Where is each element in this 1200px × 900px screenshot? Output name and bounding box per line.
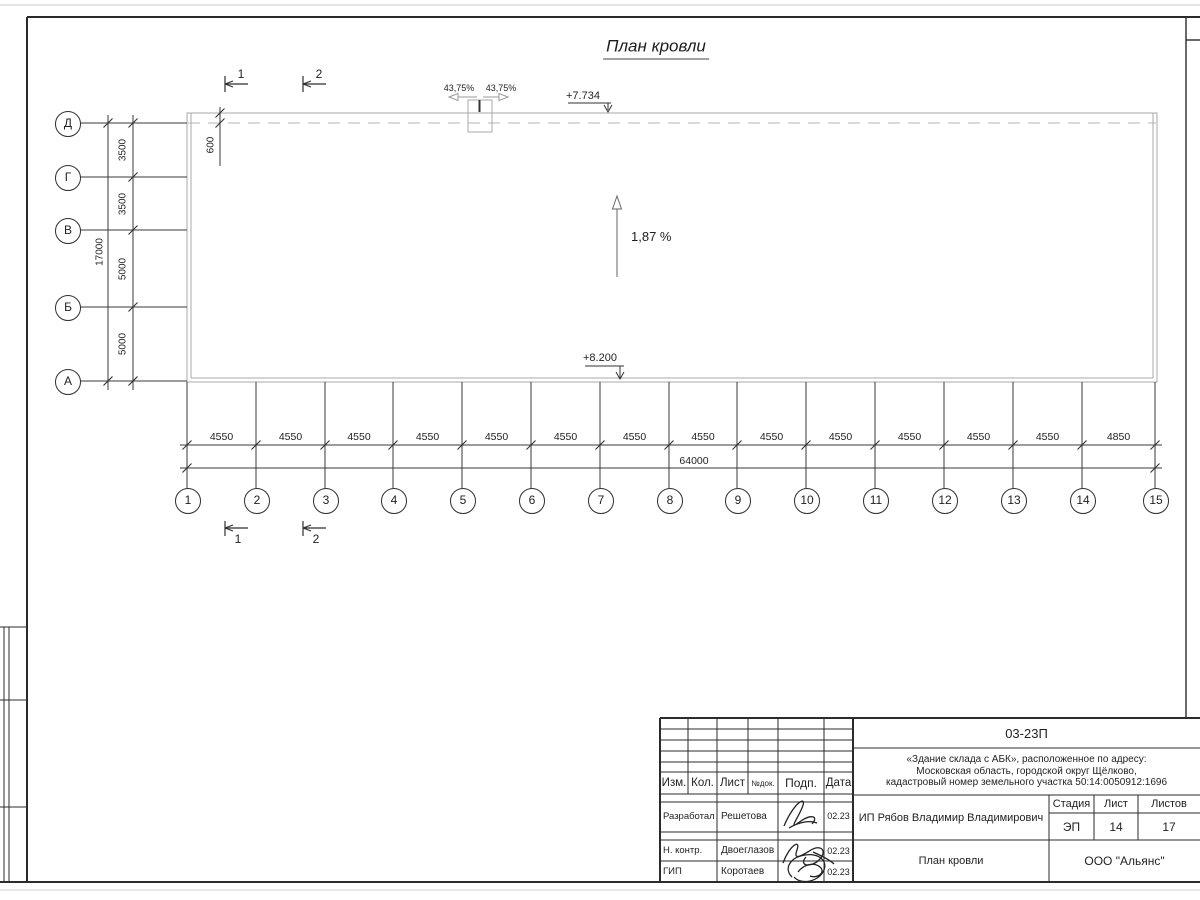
axis-col-bubble: 5 xyxy=(450,488,476,514)
dim-label-col: 4550 xyxy=(898,431,921,443)
axis-row-bubble: А xyxy=(55,369,81,395)
dim-label-row: 5000 xyxy=(117,257,128,279)
header-data: Дата xyxy=(824,772,853,794)
sheets-label: Листов xyxy=(1138,795,1200,813)
slope-label: 1,87 % xyxy=(631,229,671,244)
dim-label-col: 4550 xyxy=(347,431,370,443)
slope-arrow xyxy=(613,196,622,277)
dim-label-col: 4550 xyxy=(760,431,783,443)
left-margin-table xyxy=(0,627,27,882)
dim-label-col: 4850 xyxy=(1107,431,1130,443)
roof-outline xyxy=(187,113,1157,382)
dim-label-col: 4550 xyxy=(623,431,646,443)
header-ndok: №док. xyxy=(748,772,778,794)
drawing-name: План кровли xyxy=(853,840,1049,882)
col-total-dim-label: 64000 xyxy=(679,455,708,467)
elevation-bottom-label: +8.200 xyxy=(583,352,617,364)
elevation-mark-bottom-arrow xyxy=(585,366,624,379)
axis-col-bubble: 2 xyxy=(244,488,270,514)
axis-col-bubble: 6 xyxy=(519,488,545,514)
dim-label-row: 3500 xyxy=(117,192,128,214)
axis-row-bubble: Д xyxy=(55,111,81,137)
signer-role-3: ГИП xyxy=(663,861,716,882)
axis-row-bubble: В xyxy=(55,218,81,244)
axis-col-bubble: 15 xyxy=(1143,488,1169,514)
axis-col-bubble: 14 xyxy=(1070,488,1096,514)
section-number-bottom-1: 1 xyxy=(235,532,242,546)
project-line-2: Московская область, городской округ Щёлк… xyxy=(916,766,1137,778)
project-description: «Здание склада с АБК», расположенное по … xyxy=(853,748,1200,795)
client-name: ИП Рябов Владимир Владимирович xyxy=(853,795,1049,840)
axis-col-bubble: 1 xyxy=(175,488,201,514)
dim-label-col: 4550 xyxy=(279,431,302,443)
dim-label-col: 4550 xyxy=(829,431,852,443)
vent-slope-right-label: 43,75% xyxy=(486,83,517,93)
axis-col-bubble: 9 xyxy=(725,488,751,514)
dim-label-col: 4550 xyxy=(554,431,577,443)
doc-number: 03-23П xyxy=(853,718,1200,748)
dim-label-col: 4550 xyxy=(485,431,508,443)
stage-value: ЭП xyxy=(1049,813,1094,840)
axis-col-bubble: 10 xyxy=(794,488,820,514)
stage-label: Стадия xyxy=(1049,795,1094,813)
section-number-top-1: 1 xyxy=(238,67,245,81)
dim-label-col: 4550 xyxy=(691,431,714,443)
dim-label-col: 4550 xyxy=(1036,431,1059,443)
signer-name-1: Решетова xyxy=(721,802,777,830)
axis-col-bubble: 8 xyxy=(657,488,683,514)
axis-row-bubble: Б xyxy=(55,295,81,321)
header-izm: Изм. xyxy=(660,772,688,794)
signature-korotaev xyxy=(788,855,825,882)
axis-col-bubble: 7 xyxy=(588,488,614,514)
axis-row-bubble: Г xyxy=(55,165,81,191)
dim-label-col: 4550 xyxy=(210,431,233,443)
signature-reshetova xyxy=(784,801,817,828)
sheet-label: Лист xyxy=(1094,795,1138,813)
vent-slope-arrows xyxy=(449,94,508,101)
axis-col-bubble: 3 xyxy=(313,488,339,514)
elevation-mark-top-arrow xyxy=(568,103,612,112)
signer-role-2: Н. контр. xyxy=(663,840,716,861)
signer-role-1: Разработал xyxy=(663,802,716,830)
overhang-dim-label: 600 xyxy=(206,137,217,154)
vent-slope-left-label: 43,75% xyxy=(444,83,475,93)
signer-date-2: 02.23 xyxy=(824,840,853,861)
project-line-1: «Здание склада с АБК», расположенное по … xyxy=(907,754,1147,766)
drawing-title: План кровли xyxy=(603,37,709,60)
axis-col-bubble: 4 xyxy=(381,488,407,514)
row-total-dim-label: 17000 xyxy=(95,238,106,266)
company-name: ООО "Альянс" xyxy=(1049,840,1200,882)
axis-col-bubble: 12 xyxy=(932,488,958,514)
header-kol: Кол. xyxy=(688,772,717,794)
signer-name-3: Коротаев xyxy=(721,861,777,882)
section-number-top-2: 2 xyxy=(316,67,323,81)
project-line-3: кадастровый номер земельного участка 50:… xyxy=(886,777,1167,789)
sheet-number: 14 xyxy=(1094,813,1138,840)
axis-col-bubble: 11 xyxy=(863,488,889,514)
dim-label-row: 3500 xyxy=(117,139,128,161)
axis-col-bubble: 13 xyxy=(1001,488,1027,514)
signer-date-3: 02.23 xyxy=(824,861,853,882)
header-list: Лист xyxy=(717,772,748,794)
dim-label-col: 4550 xyxy=(416,431,439,443)
signer-name-2: Двоеглазов xyxy=(721,840,777,861)
dim-label-row: 5000 xyxy=(117,333,128,355)
elevation-top-label: +7.734 xyxy=(566,90,600,102)
sheets-total: 17 xyxy=(1138,813,1200,840)
section-number-bottom-2: 2 xyxy=(313,532,320,546)
dim-label-col: 4550 xyxy=(967,431,990,443)
drawing-sheet: План кровли 1,87 % +7.734 +8.200 43,75% … xyxy=(0,0,1200,900)
signer-date-1: 02.23 xyxy=(824,802,853,830)
header-podp: Подп. xyxy=(778,772,824,794)
